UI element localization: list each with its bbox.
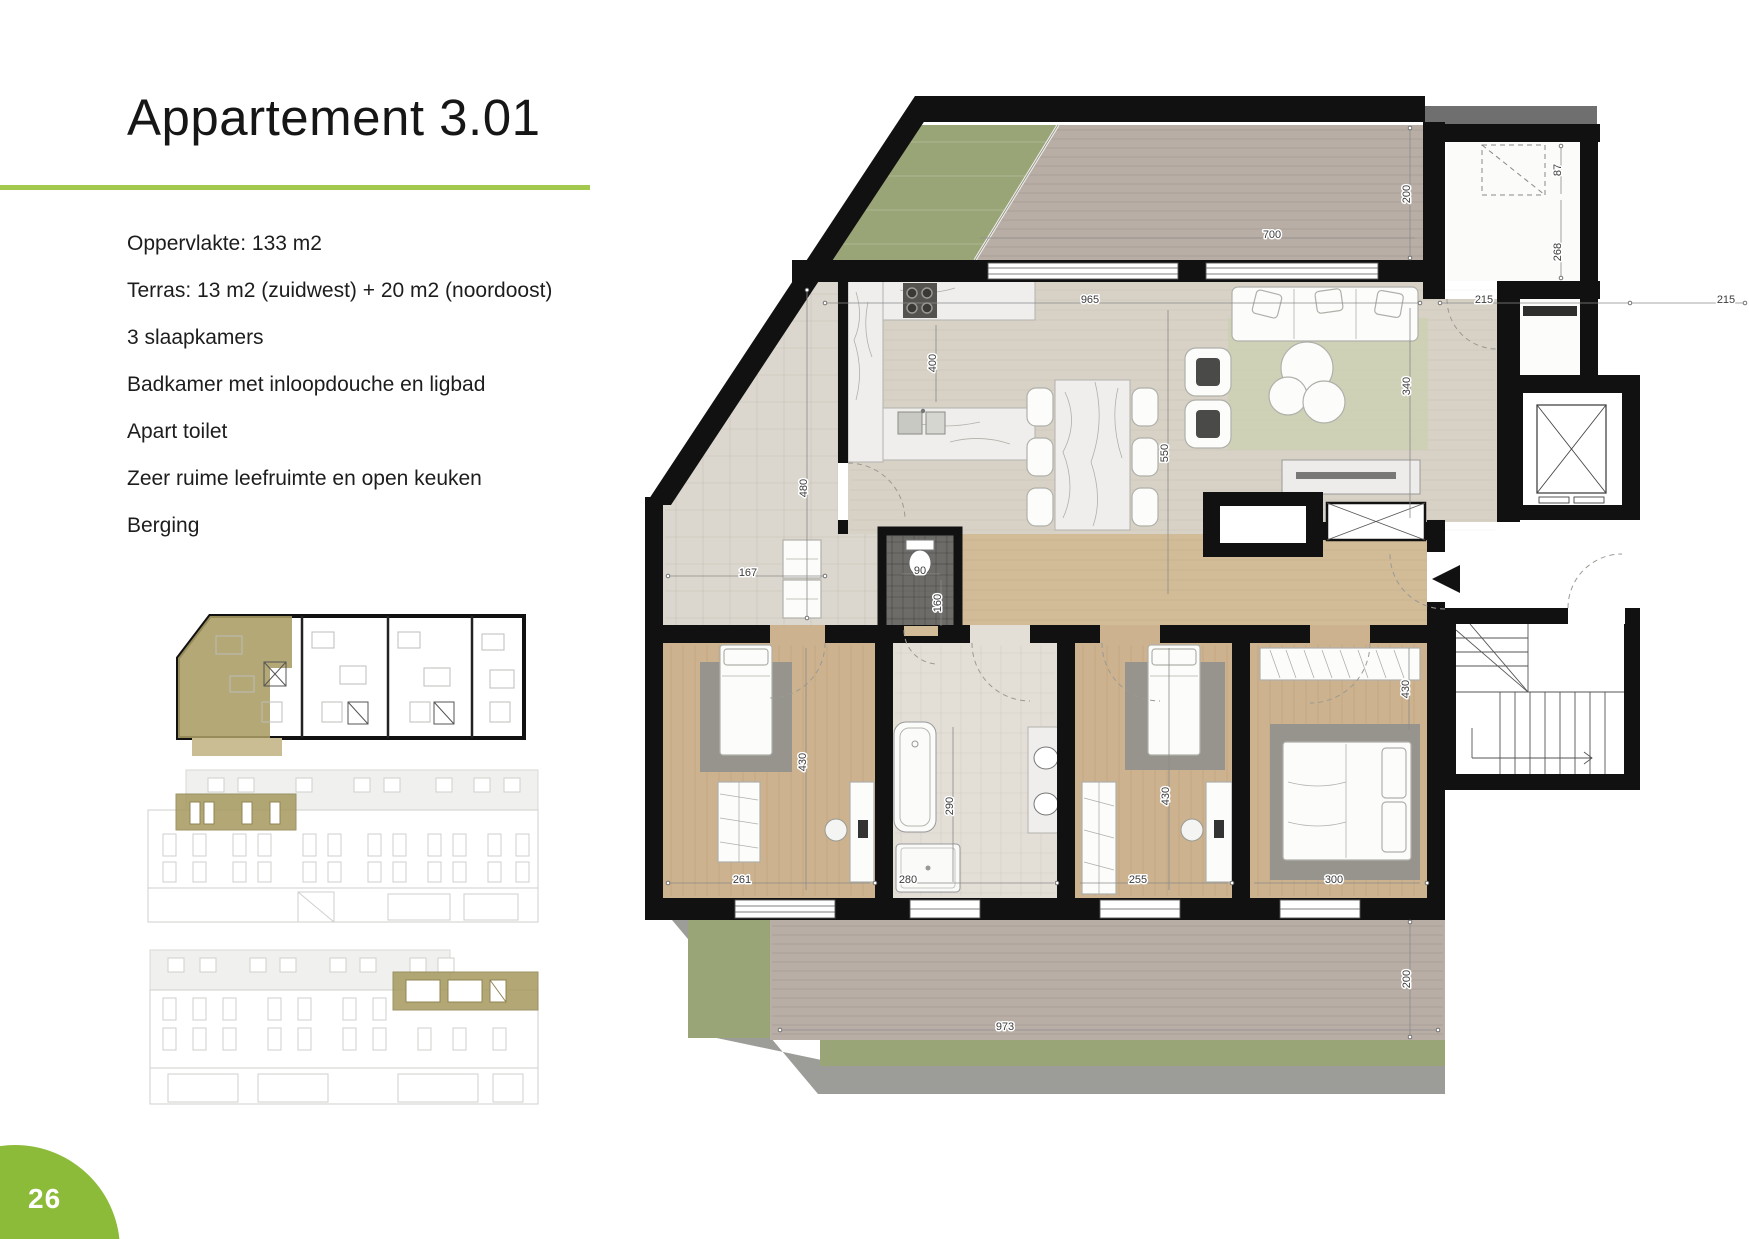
svg-text:215: 215 (1717, 294, 1735, 306)
svg-text:160: 160 (932, 594, 944, 612)
svg-text:268: 268 (1552, 243, 1564, 261)
kitchen-counter (848, 280, 883, 462)
terrace-grass-southwest (688, 920, 770, 1038)
feature-item: Terras: 13 m2 (zuidwest) + 20 m2 (noordo… (127, 280, 627, 302)
svg-text:550: 550 (1159, 444, 1171, 462)
svg-text:965: 965 (1081, 294, 1099, 306)
dining-table (1055, 380, 1130, 530)
svg-text:255: 255 (1129, 874, 1147, 886)
kitchen-sink (898, 412, 922, 434)
svg-text:973: 973 (996, 1021, 1014, 1033)
bedroom3-wardrobe (1260, 648, 1420, 680)
svg-text:200: 200 (1401, 970, 1413, 988)
page-number: 26 (28, 1183, 61, 1215)
sink (1034, 747, 1058, 769)
tv (1296, 472, 1396, 479)
elevation-rear (138, 948, 548, 1110)
main-floorplan: 2007008726896521521540055048034016790160… (620, 82, 1749, 1097)
svg-text:261: 261 (733, 874, 751, 886)
cooktop (903, 283, 937, 318)
svg-text:167: 167 (739, 567, 757, 579)
elevation-front (138, 768, 548, 930)
svg-text:340: 340 (1401, 377, 1413, 395)
svg-text:90: 90 (914, 565, 926, 577)
feature-item: Badkamer met inloopdouche en ligbad (127, 374, 627, 396)
feature-item: Oppervlakte: 133 m2 (127, 233, 627, 255)
hall-floor (955, 534, 1445, 625)
sink (1034, 793, 1058, 815)
svg-text:430: 430 (1400, 680, 1412, 698)
svg-text:87: 87 (1552, 164, 1564, 176)
neighbor-wall (1425, 106, 1597, 124)
svg-text:700: 700 (1263, 229, 1281, 241)
svg-text:400: 400 (927, 354, 939, 372)
accent-divider (0, 185, 590, 190)
feature-item: Apart toilet (127, 421, 627, 443)
svg-text:430: 430 (1160, 787, 1172, 805)
feature-item: Berging (127, 515, 627, 537)
feature-item: Zeer ruime leefruimte en open keuken (127, 468, 627, 490)
feature-item: 3 slaapkamers (127, 327, 627, 349)
svg-text:290: 290 (944, 797, 956, 815)
brochure-page: Appartement 3.01 Oppervlakte: 133 m2Terr… (0, 0, 1749, 1239)
page-title: Appartement 3.01 (127, 88, 540, 147)
feature-list: Oppervlakte: 133 m2Terras: 13 m2 (zuidwe… (127, 233, 627, 562)
mini-floorplan (172, 606, 544, 764)
desk-chair (1181, 819, 1203, 841)
toilet-cistern (906, 540, 934, 550)
garden-strip (820, 1040, 1445, 1066)
svg-text:280: 280 (899, 874, 917, 886)
highlighted-terrace (192, 738, 282, 756)
svg-text:430: 430 (797, 753, 809, 771)
svg-text:200: 200 (1401, 185, 1413, 203)
svg-text:215: 215 (1475, 294, 1493, 306)
svg-text:480: 480 (798, 479, 810, 497)
coat-rack (1523, 306, 1577, 316)
desk-chair (825, 819, 847, 841)
svg-text:300: 300 (1325, 874, 1343, 886)
landing-floor (1445, 522, 1640, 608)
page-number-badge: 26 (0, 1145, 120, 1239)
